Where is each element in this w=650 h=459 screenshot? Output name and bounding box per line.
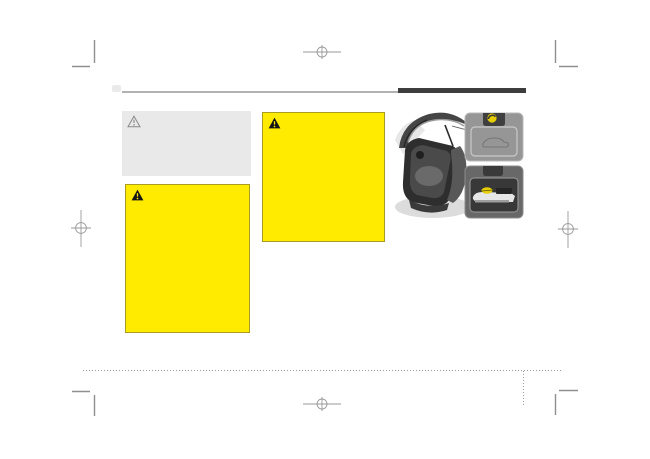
warning-triangle-icon [131, 189, 144, 201]
faint-print-artifact [112, 85, 121, 92]
tailgate-illustration [395, 110, 525, 222]
registration-mark-left [71, 210, 91, 247]
bottom-dotted-vertical [523, 371, 524, 406]
warning-box-main [262, 112, 385, 242]
crop-mark-top-left [72, 40, 95, 67]
manual-page [0, 0, 650, 459]
release-cover-closed-inset [465, 113, 523, 161]
registration-mark-top-center [303, 45, 341, 59]
release-cover-open-inset [465, 166, 523, 218]
warning-triangle-icon [268, 117, 281, 129]
crop-mark-top-right [556, 40, 579, 67]
notice-box [122, 111, 251, 176]
latch-detail [416, 151, 424, 159]
registration-mark-right [558, 211, 578, 248]
bottom-dotted-rule [83, 370, 562, 371]
tailgate-strut [445, 125, 453, 146]
crop-mark-bottom-right [556, 391, 579, 416]
section-header-bar [398, 88, 526, 93]
warning-triangle-outline-icon [127, 115, 141, 128]
tailgate-illustration-svg [395, 110, 525, 222]
registration-mark-bottom-center [303, 397, 341, 411]
warning-box-secondary [125, 184, 250, 333]
crop-mark-bottom-left [72, 392, 95, 417]
cargo-floor [415, 166, 443, 186]
